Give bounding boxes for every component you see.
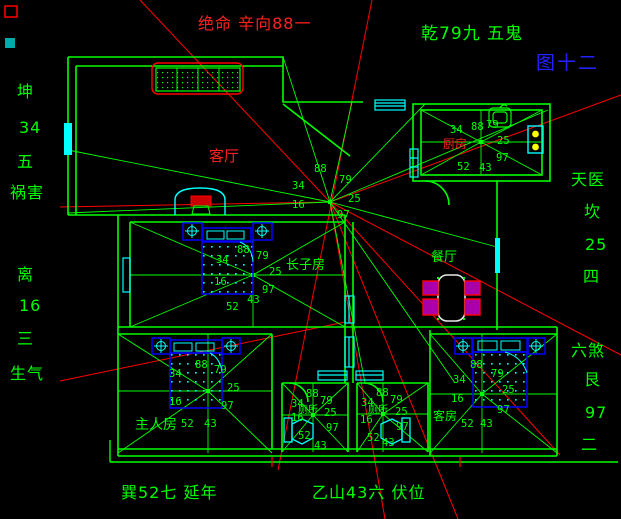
left-annotation: 16 — [19, 296, 41, 315]
star-number: 88 — [376, 387, 389, 399]
crosshair-icon — [456, 339, 543, 353]
tv-cabinet — [175, 188, 225, 215]
red-line — [330, 202, 385, 519]
kitchen-door-arc — [425, 181, 449, 205]
dining-set — [423, 275, 480, 321]
star-number: 34 — [291, 398, 304, 410]
star-number: 79 — [486, 119, 499, 131]
star-number: 43 — [479, 162, 492, 174]
red-grip-marker — [5, 6, 17, 17]
star-number: 52 — [457, 161, 470, 173]
right-annotation: 坎 — [584, 202, 601, 221]
sofa — [152, 63, 243, 94]
star-number: 52 — [367, 432, 380, 444]
bath-windows — [318, 371, 383, 380]
star-number: 16 — [291, 412, 304, 424]
star-number: 34 — [453, 374, 466, 386]
tv — [191, 196, 211, 206]
star-number: 16 — [169, 396, 182, 408]
star-number: 97 — [262, 284, 275, 296]
eldest-window — [123, 258, 130, 292]
star-number: 79 — [390, 394, 403, 406]
star-number: 88 — [195, 359, 208, 371]
room-label-dining: 餐厅 — [431, 249, 457, 265]
living-bottom-wall — [68, 215, 345, 222]
room-label-eldest: 长子房 — [286, 257, 325, 273]
left-annotation: 三 — [17, 329, 34, 348]
star-number: 43 — [382, 437, 395, 449]
left-annotation: 坤 — [17, 82, 34, 101]
red-line — [330, 202, 621, 355]
dining-window — [495, 238, 500, 273]
star-number: 25 — [502, 384, 515, 396]
dimension-baseline — [110, 440, 618, 467]
star-number: 43 — [480, 418, 493, 430]
bottom-right-annotation: 乙山43六 伏位 — [312, 483, 425, 502]
star-number: 79 — [256, 250, 269, 262]
star-number: 16 — [214, 276, 227, 288]
star-number: 88 — [314, 163, 327, 175]
room-label-master: 主人房 — [135, 417, 177, 433]
right-annotation: 97 — [585, 403, 607, 422]
right-annotation: 四 — [583, 267, 600, 286]
star-number: 34 — [169, 368, 182, 380]
star-number: 97 — [396, 421, 409, 433]
left-annotation: 34 — [19, 118, 41, 137]
star-number: 97 — [337, 209, 350, 221]
star-number: 16 — [292, 199, 305, 211]
star-number: 16 — [360, 414, 373, 426]
star-number: 88 — [306, 388, 319, 400]
star-number: 43 — [314, 440, 327, 452]
left-annotation: 离 — [17, 265, 34, 284]
star-number: 34 — [292, 180, 305, 192]
star-number: 34 — [450, 124, 463, 136]
entrance-door-line — [283, 104, 350, 156]
star-number: 97 — [497, 404, 510, 416]
bottom-walls — [118, 449, 557, 456]
star-number: 25 — [269, 266, 282, 278]
top-right-annotation: 乾79九 五鬼 — [421, 24, 523, 44]
star-number: 79 — [214, 364, 227, 376]
dining-chairs — [423, 281, 480, 315]
living-window — [64, 123, 72, 155]
kitchen-window — [410, 149, 418, 177]
star-number: 34 — [216, 254, 229, 266]
room-label-guest: 客房 — [433, 408, 457, 423]
right-annotation: 艮 — [584, 370, 601, 389]
left-annotation: 生气 — [10, 364, 44, 383]
star-numbers: 88 79 34 25 16 97 34 88 79 25 97 43 52 8… — [169, 119, 515, 452]
left-annotation: 祸害 — [10, 183, 44, 202]
room-label-living: 客厅 — [209, 147, 239, 165]
right-annotation: 天医 — [571, 170, 605, 189]
star-number: 52 — [181, 418, 194, 430]
star-number: 25 — [497, 135, 510, 147]
fengshui-floorplan-canvas: 绝命 辛向88一 乾79九 五鬼 图十二 坤 34 五 祸害 离 16 三 生气… — [0, 0, 621, 519]
star-number: 79 — [320, 395, 333, 407]
hall-top-window — [375, 100, 405, 110]
star-number: 52 — [298, 430, 311, 442]
star-number: 34 — [361, 397, 374, 409]
top-left-annotation: 绝命 辛向88一 — [198, 14, 311, 33]
burner — [532, 144, 539, 151]
star-number: 88 — [470, 359, 483, 371]
right-annotation: 二 — [581, 435, 598, 454]
star-number: 88 — [237, 244, 250, 256]
stove — [528, 126, 543, 153]
right-annotation: 六煞 — [571, 341, 605, 360]
star-number: 88 — [471, 121, 484, 133]
star-number: 25 — [227, 382, 240, 394]
star-number: 52 — [226, 301, 239, 313]
star-number: 25 — [395, 406, 408, 418]
figure-number-label: 图十二 — [536, 52, 599, 74]
star-number: 97 — [221, 400, 234, 412]
star-number: 25 — [324, 407, 337, 419]
dining-table — [438, 275, 465, 321]
star-number: 79 — [339, 174, 352, 186]
red-sight-lines — [60, 0, 621, 519]
right-annotation: 25 — [585, 235, 607, 254]
mid-horizontal-wall — [118, 327, 557, 334]
left-annotation: 五 — [17, 152, 34, 171]
star-number: 79 — [491, 368, 504, 380]
star-number: 43 — [204, 418, 217, 430]
star-number: 43 — [247, 294, 260, 306]
burner — [532, 131, 539, 138]
star-number: 25 — [348, 193, 361, 205]
star-number: 52 — [461, 418, 474, 430]
bottom-left-annotation: 巽52七 延年 — [121, 483, 217, 502]
master-bed — [152, 338, 240, 408]
edge-markers — [5, 6, 17, 48]
star-number: 97 — [326, 422, 339, 434]
teal-grip-marker — [5, 38, 15, 48]
star-number: 97 — [496, 152, 509, 164]
room-label-kitchen: 厨房 — [443, 136, 467, 151]
star-number: 16 — [451, 393, 464, 405]
